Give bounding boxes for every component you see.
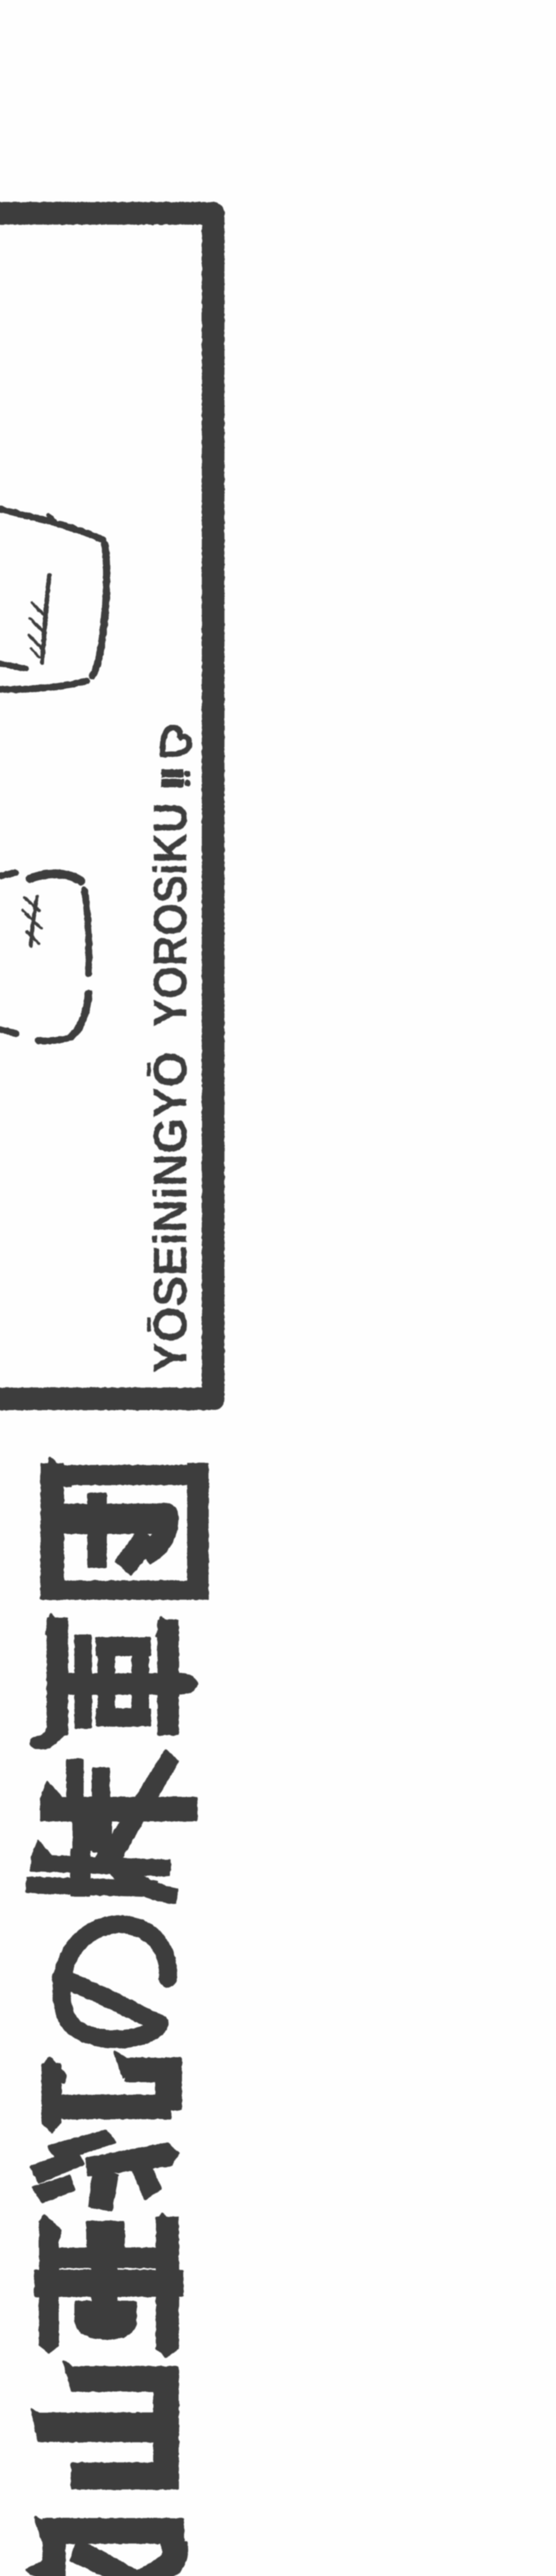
svg-text:YOROSiKU: YOROSiKU (144, 803, 197, 1027)
svg-text:YŌSEiNiNGYŌ: YŌSEiNiNGYŌ (144, 1052, 197, 1373)
